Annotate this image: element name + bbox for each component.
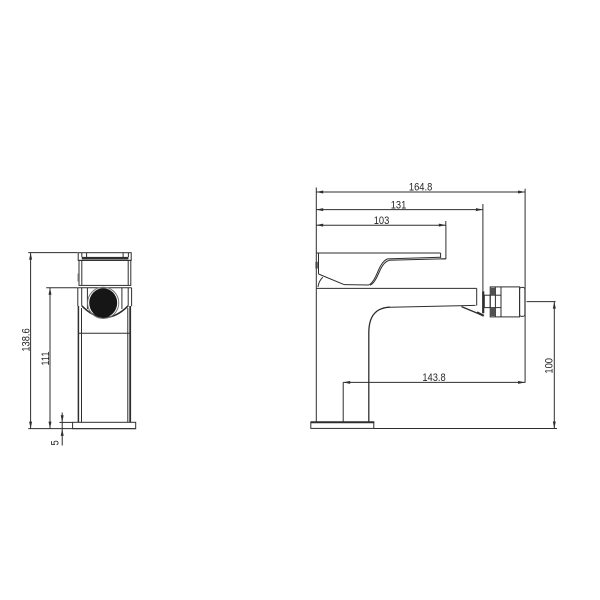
svg-text:111: 111 [41, 351, 53, 365]
svg-text:5: 5 [50, 440, 62, 445]
svg-text:138.6: 138.6 [21, 328, 33, 352]
svg-text:164.8: 164.8 [409, 182, 433, 194]
svg-text:103: 103 [374, 215, 390, 227]
svg-text:143.8: 143.8 [422, 373, 446, 385]
svg-text:131: 131 [391, 200, 407, 212]
svg-text:100: 100 [544, 358, 556, 374]
